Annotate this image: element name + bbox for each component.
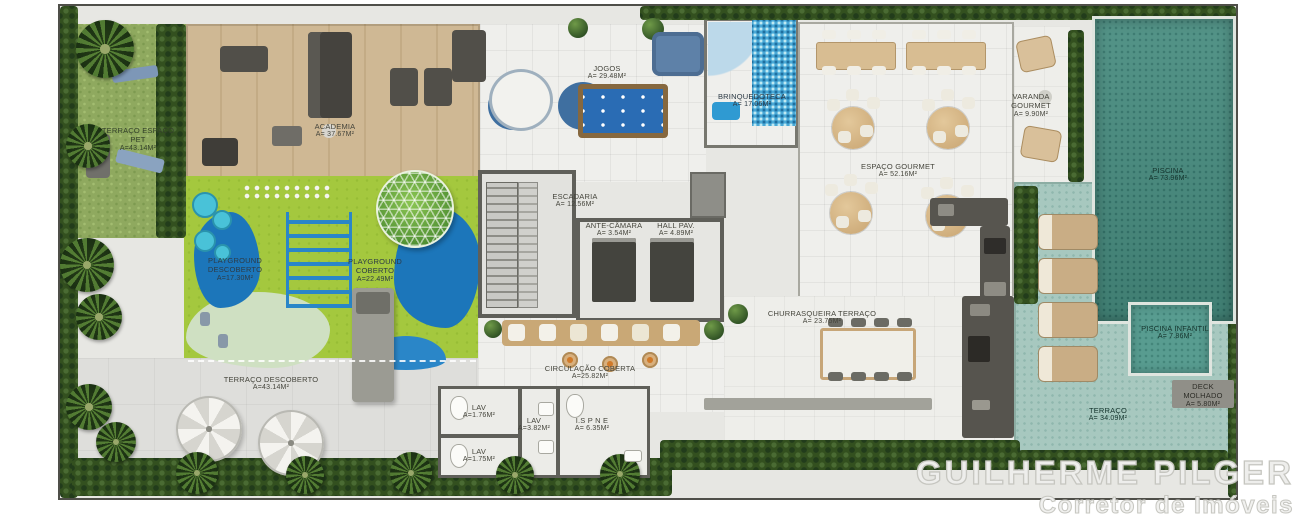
spring-rider — [218, 334, 228, 348]
label-piscina-infantil: PISCINA INFANTIL A= 7.86m² — [1133, 324, 1217, 342]
watermark: GUILHERME PILGER Corretor de Imóveis — [916, 454, 1294, 520]
room-name: PISCINA INFANTIL — [1133, 324, 1217, 333]
patio-umbrella — [176, 396, 242, 462]
room-area: A= 17.06m² — [710, 101, 794, 110]
dining-table-long — [906, 42, 986, 70]
label-is-pne: I.S P N E A= 6.35m² — [574, 416, 610, 434]
room-name: PLAYGROUND DESCOBERTO — [200, 256, 270, 275]
sink — [538, 440, 554, 454]
room-area: A=17.30m² — [200, 275, 270, 284]
room-name: PLAYGROUND COBERTO — [343, 257, 407, 276]
bbq-dining-table — [820, 328, 916, 380]
round-table — [830, 192, 872, 234]
ball-sculpture — [194, 230, 216, 252]
elevator — [650, 238, 694, 302]
label-jogos: JOGOS A= 29.48m² — [572, 64, 642, 82]
dumbbell-rack — [202, 138, 238, 166]
label-lav-3: LAV A=1.75m² — [459, 447, 499, 465]
palm-tree-icon — [66, 384, 112, 430]
sink — [984, 282, 1006, 296]
sofa — [652, 32, 704, 76]
palm-tree-icon — [96, 422, 136, 462]
playground-structure — [356, 292, 390, 314]
label-academia: ACADEMIA A= 37.67m² — [295, 122, 375, 140]
cable-machine — [452, 30, 486, 82]
label-terraco-espaco-pet: TERRAÇO ESPAÇO PET A=43.14m² — [100, 126, 176, 154]
stair-flight — [486, 182, 518, 308]
label-deck-molhado: DECK MOLHADO A= 5.80m² — [1172, 382, 1234, 410]
geodesic-dome — [376, 170, 454, 248]
room-name: CIRCULAÇÃO COBERTA — [533, 364, 647, 373]
room-name: JOGOS — [572, 64, 642, 73]
room-area: A=25.82m² — [533, 373, 647, 382]
room-area: A= 9.90m² — [1004, 111, 1058, 120]
round-table — [832, 107, 874, 149]
treadmill — [308, 32, 352, 118]
label-hall-pav: HALL PAV. A= 4.89m² — [644, 221, 708, 239]
wall — [438, 434, 520, 438]
room-name: LAV — [459, 447, 499, 456]
room-name: TERRAÇO DESCOBERTO — [214, 375, 328, 384]
palm-tree-icon — [496, 456, 534, 494]
climbing-stones — [242, 184, 330, 200]
palm-tree-icon — [60, 238, 114, 292]
label-churrasqueira-terraco: CHURRASQUEIRA TERRAÇO A= 23.75m² — [755, 309, 889, 327]
label-piscina: PISCINA A= 73.96m² — [1132, 166, 1204, 184]
bbq-grill — [968, 336, 990, 362]
watermark-name: GUILHERME PILGER — [916, 454, 1294, 492]
room-area: A= 73.96m² — [1132, 175, 1204, 184]
label-circulacao-coberta: CIRCULAÇÃO COBERTA A=25.82m² — [533, 364, 647, 382]
room-area: A= 6.35m² — [574, 425, 610, 434]
chairs — [912, 30, 926, 39]
chairs — [822, 30, 836, 39]
label-lav-2: LAV A=3.82m² — [508, 416, 560, 434]
sun-lounger — [1038, 346, 1098, 382]
palm-tree-icon — [176, 452, 218, 494]
planter-bench — [704, 398, 932, 410]
accessible-toilet — [566, 394, 584, 418]
room-area: A=43.14m² — [214, 384, 328, 393]
room-name: TERRAÇO — [1076, 406, 1140, 415]
service-closet — [690, 172, 726, 218]
cooktop — [984, 238, 1006, 254]
palm-tree-icon — [76, 20, 134, 78]
bbq-counter — [962, 296, 1014, 438]
plant-icon — [728, 304, 748, 324]
room-area: A= 29.48m² — [572, 73, 642, 82]
chairs — [846, 89, 859, 101]
room-name: I.S P N E — [574, 416, 610, 425]
room-name: LAV — [459, 403, 499, 412]
room-name: PISCINA — [1132, 166, 1204, 175]
hedge-deck-left — [1014, 186, 1038, 304]
room-area: A= 37.67m² — [295, 131, 375, 140]
room-name: ESCADARIA — [538, 192, 612, 201]
palm-tree-icon — [76, 294, 122, 340]
palm-tree-icon — [286, 456, 324, 494]
label-brinquedoteca: BRINQUEDOTECA A= 17.06m² — [710, 92, 794, 110]
lounge-chair — [1020, 125, 1063, 163]
room-area: A= 34.09m² — [1076, 415, 1140, 424]
bbq-sink — [970, 304, 990, 316]
label-playground-descoberto: PLAYGROUND DESCOBERTO A=17.30m² — [200, 256, 270, 284]
sun-lounger — [1038, 258, 1098, 294]
room-area: A= 4.89m² — [644, 230, 708, 239]
sink — [624, 450, 642, 462]
label-escadaria: ESCADARIA A= 12.56m² — [538, 192, 612, 210]
exercise-bike — [424, 68, 452, 106]
room-area: A= 23.75m² — [755, 318, 889, 327]
room-name: CHURRASQUEIRA TERRAÇO — [755, 309, 889, 318]
sink — [938, 204, 954, 216]
room-name: ESPAÇO GOURMET — [840, 162, 956, 171]
watermark-role: Corretor de Imóveis — [916, 492, 1294, 520]
exercise-bike — [390, 68, 418, 106]
weight-machine — [220, 46, 268, 72]
label-terraco-descoberto: TERRAÇO DESCOBERTO A=43.14m² — [214, 375, 328, 393]
room-name: BRINQUEDOTECA — [710, 92, 794, 101]
sun-lounger — [1038, 302, 1098, 338]
plant-icon — [568, 18, 588, 38]
room-name: ACADEMIA — [295, 122, 375, 131]
label-playground-coberto: PLAYGROUND COBERTO A=22.49m² — [343, 257, 407, 285]
room-name: VARANDA GOURMET — [1004, 92, 1058, 111]
label-espaco-gourmet: ESPAÇO GOURMET A= 52.16m² — [840, 162, 956, 180]
floor-plan: TERRAÇO ESPAÇO PET A=43.14m² ACADEMIA A=… — [60, 6, 1236, 498]
floor-plan-image: TERRAÇO ESPAÇO PET A=43.14m² ACADEMIA A=… — [0, 0, 1300, 520]
room-name: HALL PAV. — [644, 221, 708, 230]
room-area: A=43.14m² — [100, 145, 176, 154]
bench-with-pillows — [502, 320, 700, 346]
room-area: A=22.49m² — [343, 276, 407, 285]
sink — [538, 402, 554, 416]
room-area: A= 12.56m² — [538, 201, 612, 210]
chairs — [941, 89, 954, 101]
room-name: DECK MOLHADO — [1172, 382, 1234, 401]
label-terraco: TERRAÇO A= 34.09m² — [1076, 406, 1140, 424]
room-area: A=3.82m² — [508, 425, 560, 434]
room-area: A= 5.80m² — [1172, 401, 1234, 410]
spring-rider — [200, 312, 210, 326]
room-name: LAV — [508, 416, 560, 425]
room-area: A=1.76m² — [459, 412, 499, 421]
bbq-sink — [972, 400, 990, 410]
pillows — [508, 324, 525, 341]
ball-sculpture — [212, 210, 232, 230]
stair-flight — [518, 182, 538, 308]
elevator — [592, 238, 636, 302]
room-area: A= 52.16m² — [840, 171, 956, 180]
game-table — [492, 72, 550, 128]
round-table — [927, 107, 969, 149]
sun-lounger — [1038, 214, 1098, 250]
plant-icon — [484, 320, 502, 338]
palm-tree-icon — [390, 452, 432, 494]
pool-table — [578, 84, 668, 138]
boundary-dashed-line — [188, 360, 476, 362]
dining-table-long — [816, 42, 896, 70]
plant-icon — [704, 320, 724, 340]
room-area: A=1.75m² — [459, 456, 499, 465]
room-name: TERRAÇO ESPAÇO PET — [100, 126, 176, 145]
room-area: A= 7.86m² — [1133, 333, 1217, 342]
label-lav-1: LAV A=1.76m² — [459, 403, 499, 421]
label-varanda-gourmet: VARANDA GOURMET A= 9.90m² — [1004, 92, 1058, 120]
hedge-balcony-right — [1068, 30, 1084, 182]
